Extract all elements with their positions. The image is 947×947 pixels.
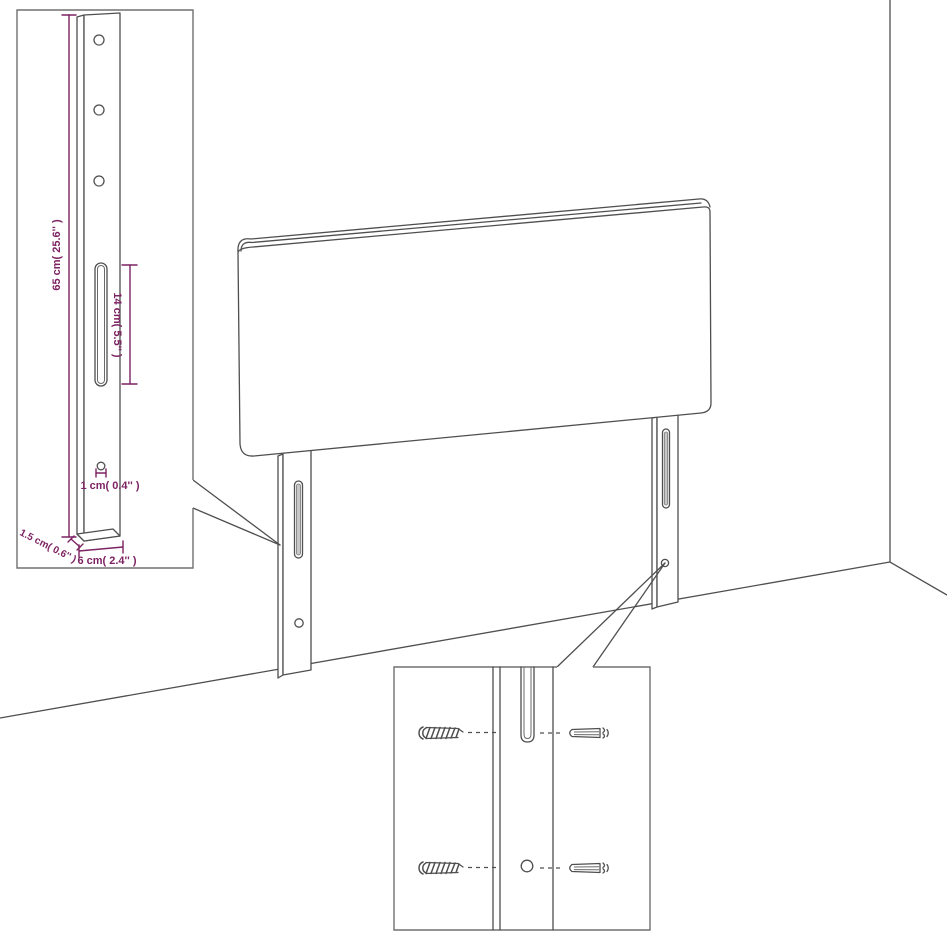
post-small-hole — [97, 462, 105, 470]
dim-width-label: 6 cm( 2.4'' ) — [77, 555, 136, 567]
left-leg-hole — [295, 619, 303, 627]
dim-hole-diameter-label: 1 cm( 0.4'' ) — [80, 480, 139, 492]
callout-line-lower — [193, 508, 280, 545]
right-leg-slot-inner — [664, 432, 667, 505]
post-side-face — [77, 15, 84, 541]
callout-line-right — [593, 563, 665, 667]
leg-detail-inset: 65 cm( 25.6'' ) 14 cm( 5.5'' ) 1 cm( 0.4… — [17, 10, 193, 568]
hardware-detail-callout — [557, 563, 665, 667]
dim-slot-length-label: 14 cm( 5.5'' ) — [111, 292, 123, 357]
headboard — [238, 199, 711, 456]
left-leg-side-face — [278, 454, 283, 678]
headboard-panel — [238, 207, 711, 456]
hardware-detail-inset-background — [394, 667, 650, 930]
callout-line-upper — [193, 480, 280, 545]
callout-line-left — [557, 563, 665, 667]
headboard-diagram: 65 cm( 25.6'' ) 14 cm( 5.5'' ) 1 cm( 0.4… — [0, 0, 947, 947]
post-slot — [95, 263, 107, 386]
hardware-detail-inset — [394, 667, 650, 930]
right-leg — [652, 411, 678, 609]
left-leg-slot-inner — [297, 484, 301, 555]
floor-line-right — [890, 562, 947, 595]
diagram-canvas: 65 cm( 25.6'' ) 14 cm( 5.5'' ) 1 cm( 0.4… — [0, 0, 947, 947]
left-leg — [278, 447, 311, 678]
leg-detail-callout — [193, 480, 280, 545]
dim-leg-height-label: 65 cm( 25.6'' ) — [51, 219, 63, 291]
